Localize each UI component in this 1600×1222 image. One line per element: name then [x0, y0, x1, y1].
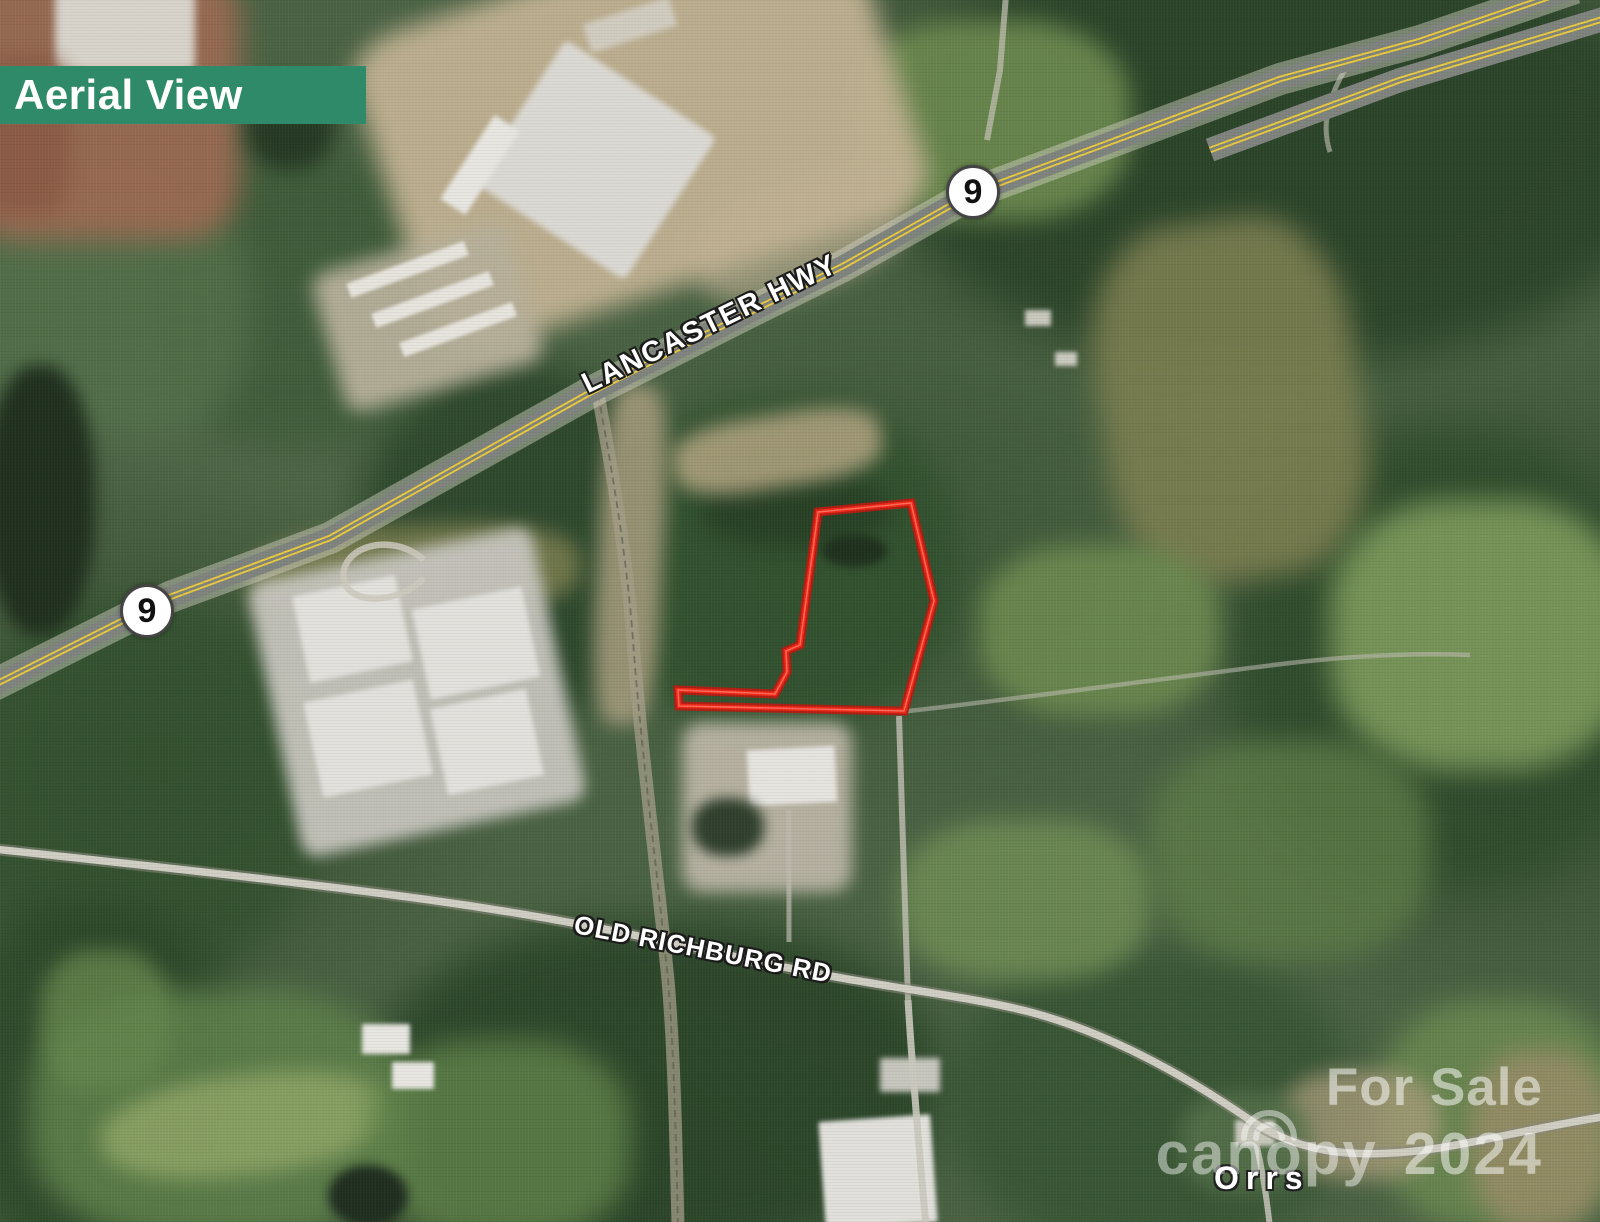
- railroad-track-line: [596, 383, 678, 1222]
- route-9-number: 9: [138, 592, 157, 631]
- railroad: [596, 383, 678, 1222]
- loop-ramp: [344, 545, 424, 599]
- route-9-badge-east: 9: [946, 165, 1000, 219]
- old-richburg-road: [0, 848, 1600, 1154]
- north-stub-road: [987, 0, 1006, 140]
- route-9-number: 9: [964, 173, 983, 212]
- parcel-outline: [678, 503, 934, 711]
- east-farm-road: [900, 654, 1470, 712]
- route-9-badge-west: 9: [120, 584, 174, 638]
- parcel-south-road: [899, 716, 908, 1000]
- south-driveway-road: [908, 1000, 926, 1222]
- aerial-view-banner-text: Aerial View: [14, 71, 243, 119]
- aerial-map: LANCASTER HWY OLD RICHBURG RD 9 9 Orrs A…: [0, 0, 1600, 1222]
- old-richburg-road-casing: [0, 848, 1600, 1154]
- aerial-view-banner: Aerial View: [0, 66, 366, 124]
- orrs-place-label: Orrs: [1214, 1160, 1310, 1197]
- roads-and-parcel-overlay: [0, 0, 1600, 1222]
